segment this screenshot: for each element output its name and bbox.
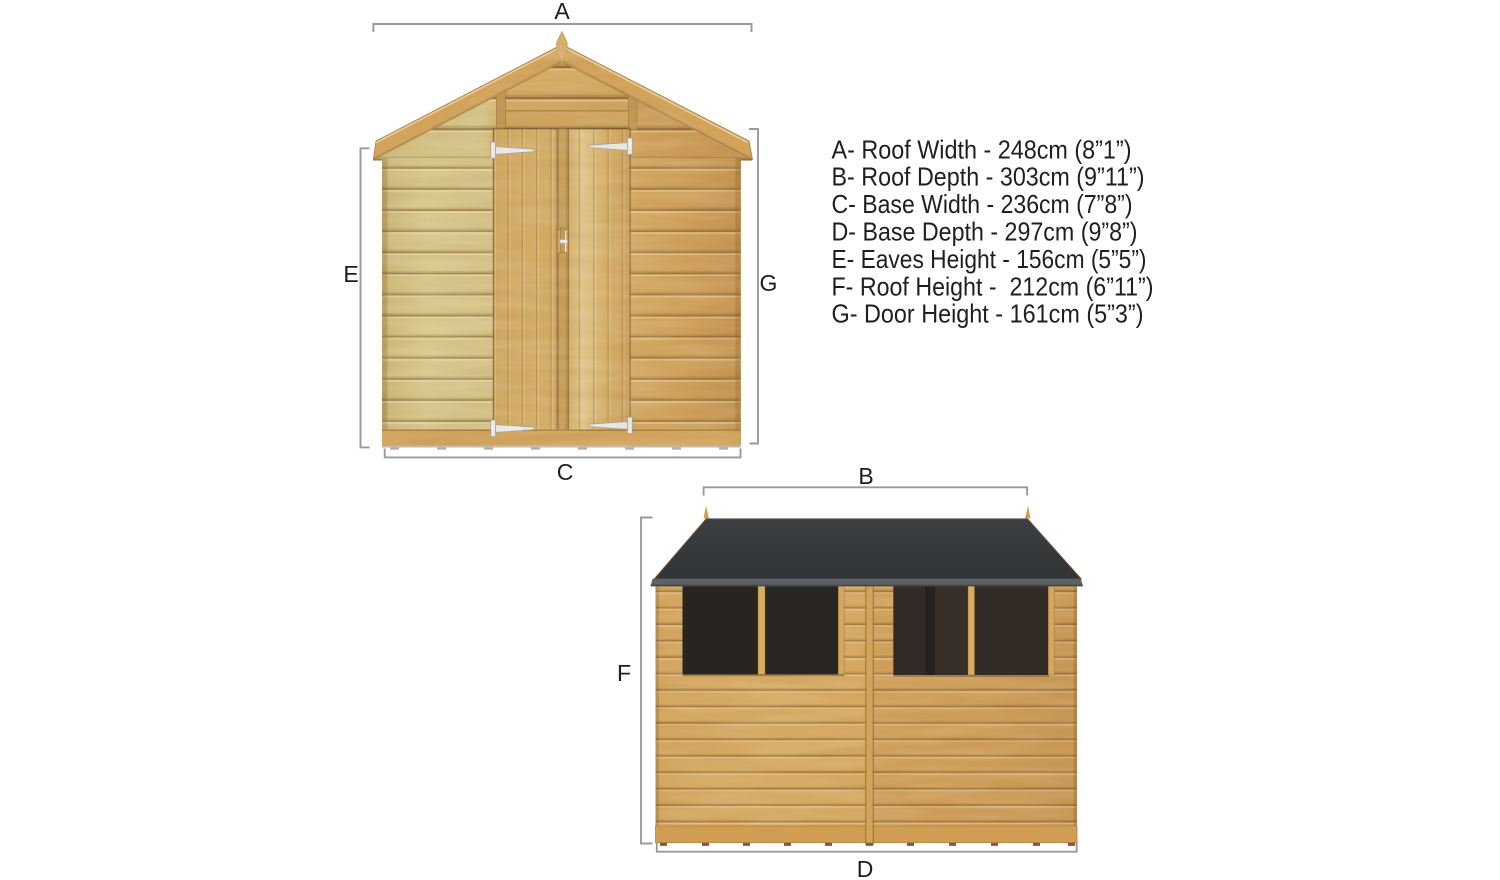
svg-text:G: G bbox=[760, 270, 778, 296]
svg-text:F- Roof Height - 212cm (6”11”: F- Roof Height - 212cm (6”11”) bbox=[832, 271, 1154, 301]
svg-text:C- Base Width - 236cm (7”8”): C- Base Width - 236cm (7”8”) bbox=[832, 189, 1133, 219]
svg-text:C: C bbox=[557, 459, 574, 485]
svg-text:A- Roof Width - 248cm (8”1”): A- Roof Width - 248cm (8”1”) bbox=[832, 134, 1132, 164]
svg-text:D: D bbox=[857, 856, 874, 880]
svg-text:B- Roof Depth - 303cm (9”11”): B- Roof Depth - 303cm (9”11”) bbox=[832, 162, 1145, 192]
svg-text:E: E bbox=[343, 261, 358, 287]
svg-text:D- Base Depth - 297cm (9”8”): D- Base Depth - 297cm (9”8”) bbox=[832, 217, 1138, 247]
svg-text:F: F bbox=[617, 660, 631, 686]
svg-text:G- Door Height - 161cm (5”3”): G- Door Height - 161cm (5”3”) bbox=[832, 299, 1144, 329]
svg-text:A: A bbox=[554, 0, 570, 24]
svg-text:B: B bbox=[858, 463, 873, 489]
svg-text:E- Eaves Height - 156cm (5”5”): E- Eaves Height - 156cm (5”5”) bbox=[832, 244, 1147, 274]
